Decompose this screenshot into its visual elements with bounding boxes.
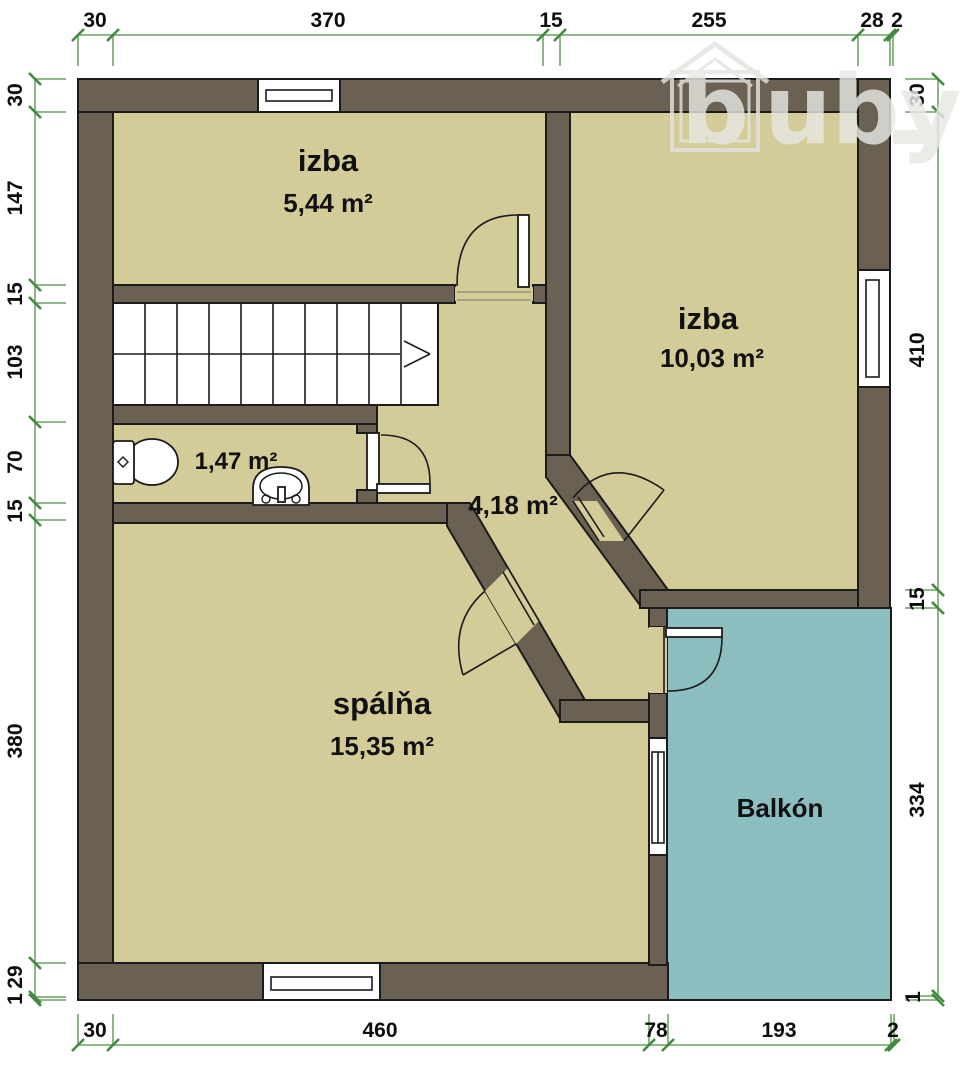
dim-right-2: 15 — [906, 587, 929, 611]
window-bedroom-balcony — [649, 738, 667, 855]
room-area-bedroom: 15,35 m² — [330, 731, 434, 761]
staircase — [113, 303, 438, 405]
room-area-izba-large: 10,03 m² — [660, 343, 764, 373]
wall-balcony-left-upper — [649, 608, 667, 627]
dimensions-bottom: 30 460 78 193 2 — [72, 1014, 900, 1051]
floor-plan-drawing: izba 5,44 m² izba 10,03 m² 1,47 m² 4,18 … — [0, 0, 972, 1080]
dim-left-7: 29 — [4, 965, 27, 988]
dim-left-1: 147 — [4, 180, 27, 215]
window-izba-small — [258, 79, 340, 112]
dim-left-5: 15 — [4, 499, 27, 523]
witness-lines-left — [35, 79, 66, 1000]
dim-values-right: 30 410 15 334 1 — [902, 83, 929, 1003]
dim-top-4: 28 — [860, 9, 884, 32]
room-label-izba-large: izba — [678, 301, 739, 336]
dimensions-right: 30 410 15 334 1 — [902, 73, 944, 1006]
dim-top-0: 30 — [83, 9, 106, 32]
toilet-icon — [113, 439, 178, 485]
room-label-izba-small: izba — [298, 143, 359, 178]
dim-left-3: 103 — [4, 344, 27, 379]
dim-bottom-0: 30 — [83, 1019, 106, 1042]
witness-lines-right — [905, 79, 938, 1000]
dim-left-4: 70 — [4, 450, 27, 473]
wall-izba-small-bottom — [113, 285, 455, 303]
dim-right-3: 334 — [906, 782, 929, 817]
wall-bedroom-top — [113, 503, 447, 523]
wall-balcony-left-lower — [649, 855, 667, 965]
watermark: b uby — [662, 44, 962, 166]
window-bedroom — [263, 963, 380, 1000]
dim-top-5: 2 — [891, 9, 903, 32]
dim-values-top: 30 370 15 255 28 2 — [83, 9, 903, 32]
dim-values-left: 30 147 15 103 70 15 380 29 1 — [4, 83, 27, 1005]
dim-bottom-1: 460 — [362, 1019, 397, 1042]
dim-bottom-4: 2 — [887, 1019, 899, 1042]
dim-bottom-3: 193 — [761, 1019, 796, 1042]
dim-left-6: 380 — [4, 723, 27, 758]
room-label-bedroom: spálňa — [333, 686, 432, 721]
room-area-bathroom: 1,47 m² — [195, 448, 278, 475]
dim-left-8: 1 — [4, 993, 27, 1005]
watermark-letters-uby: uby — [764, 56, 962, 166]
room-label-balcony: Balkón — [737, 793, 824, 823]
wall-hall-bottom — [560, 700, 649, 722]
dim-top-1: 370 — [310, 9, 345, 32]
dim-top-3: 255 — [691, 9, 726, 32]
wall-above-balcony — [640, 590, 858, 608]
dim-bottom-2: 78 — [644, 1019, 668, 1042]
floor-plan-canvas: izba 5,44 m² izba 10,03 m² 1,47 m² 4,18 … — [0, 0, 972, 1080]
dim-left-2: 15 — [4, 282, 27, 306]
dim-right-4: 1 — [902, 991, 925, 1003]
wall-below-stairs — [113, 405, 377, 424]
watermark-letter-b: b — [681, 56, 749, 166]
room-area-izba-small: 5,44 m² — [283, 188, 373, 218]
room-area-hallway: 4,18 m² — [468, 490, 558, 520]
wall-outer-left — [78, 79, 113, 1000]
dim-top-2: 15 — [539, 9, 563, 32]
window-izba-large — [858, 270, 890, 387]
wall-bathroom-jamb-top — [357, 424, 377, 433]
wall-between-izba-rooms — [546, 112, 570, 462]
dim-values-bottom: 30 460 78 193 2 — [83, 1019, 899, 1042]
watermark-underbar — [893, 130, 929, 144]
dim-left-0: 30 — [4, 83, 27, 106]
dimensions-left: 30 147 15 103 70 15 380 29 1 — [4, 73, 66, 1006]
dim-right-1: 410 — [906, 332, 929, 367]
wall-balcony-left-mid — [649, 693, 667, 738]
